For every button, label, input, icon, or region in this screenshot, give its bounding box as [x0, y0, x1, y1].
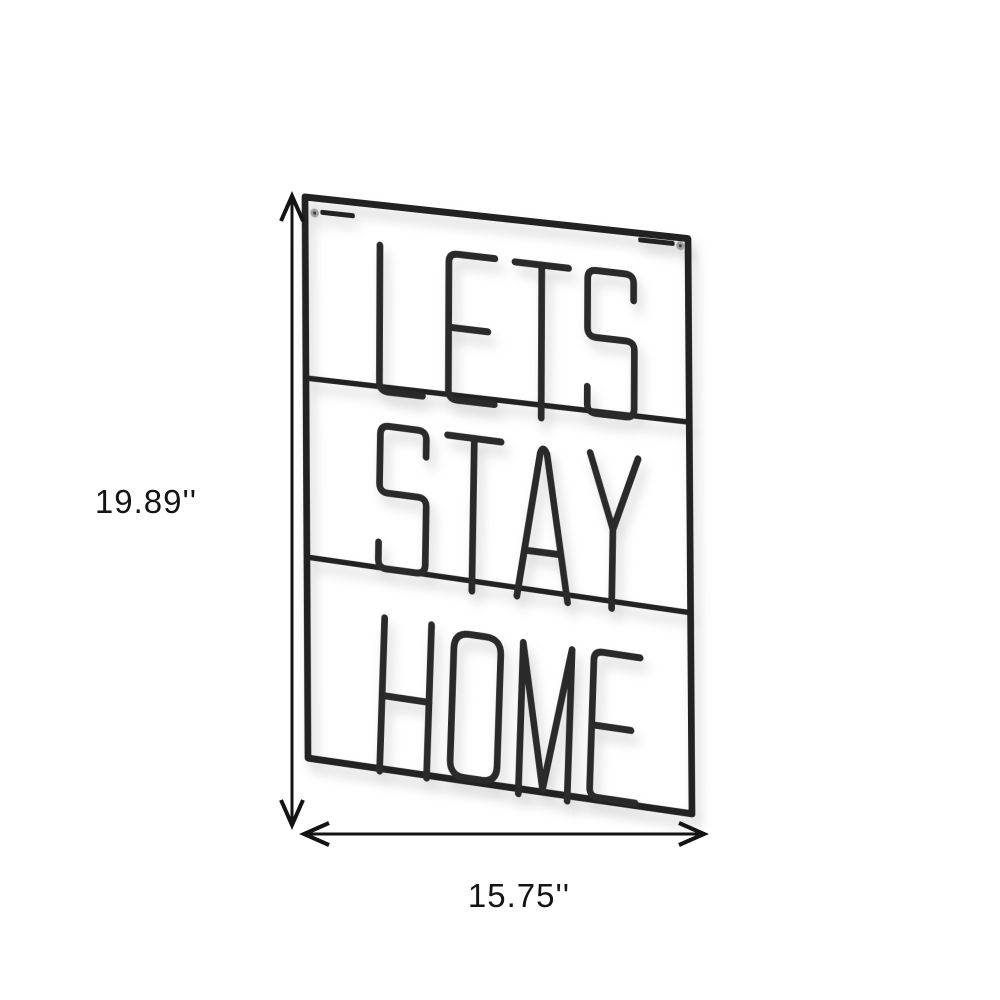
width-dimension: 15.75'' [304, 823, 704, 914]
sign-letter-e [452, 328, 487, 332]
sign-letter-a [517, 446, 570, 603]
sign-letter-s [378, 425, 427, 574]
height-dimension: 19.89'' [95, 196, 303, 825]
sign-letter-y [589, 453, 638, 533]
mounting-bracket-left [310, 208, 355, 222]
width-dimension-label: 15.75'' [468, 877, 570, 914]
sign-letter-t [541, 265, 542, 418]
sign-divider-bottom [307, 557, 690, 613]
sign-letter-s [587, 269, 634, 417]
sign-letters [377, 245, 641, 812]
figure-canvas: 19.89'' 15.75'' [0, 0, 1000, 1000]
height-dimension-label: 19.89'' [95, 483, 197, 520]
bracket-bar [320, 210, 354, 219]
sign-letter-h [382, 695, 429, 702]
sign-letter-m [518, 642, 572, 801]
product-dimension-image: 19.89'' 15.75'' [0, 0, 1000, 1000]
sign-row-home [380, 618, 641, 811]
sign-letter-y [612, 530, 613, 609]
sign-letter-l [379, 245, 423, 396]
sign-letter-t [472, 438, 475, 591]
wall-sign [305, 197, 692, 817]
sign-letter-a [525, 550, 560, 555]
sign-letter-o [450, 632, 502, 782]
sign-letter-e [596, 725, 631, 730]
